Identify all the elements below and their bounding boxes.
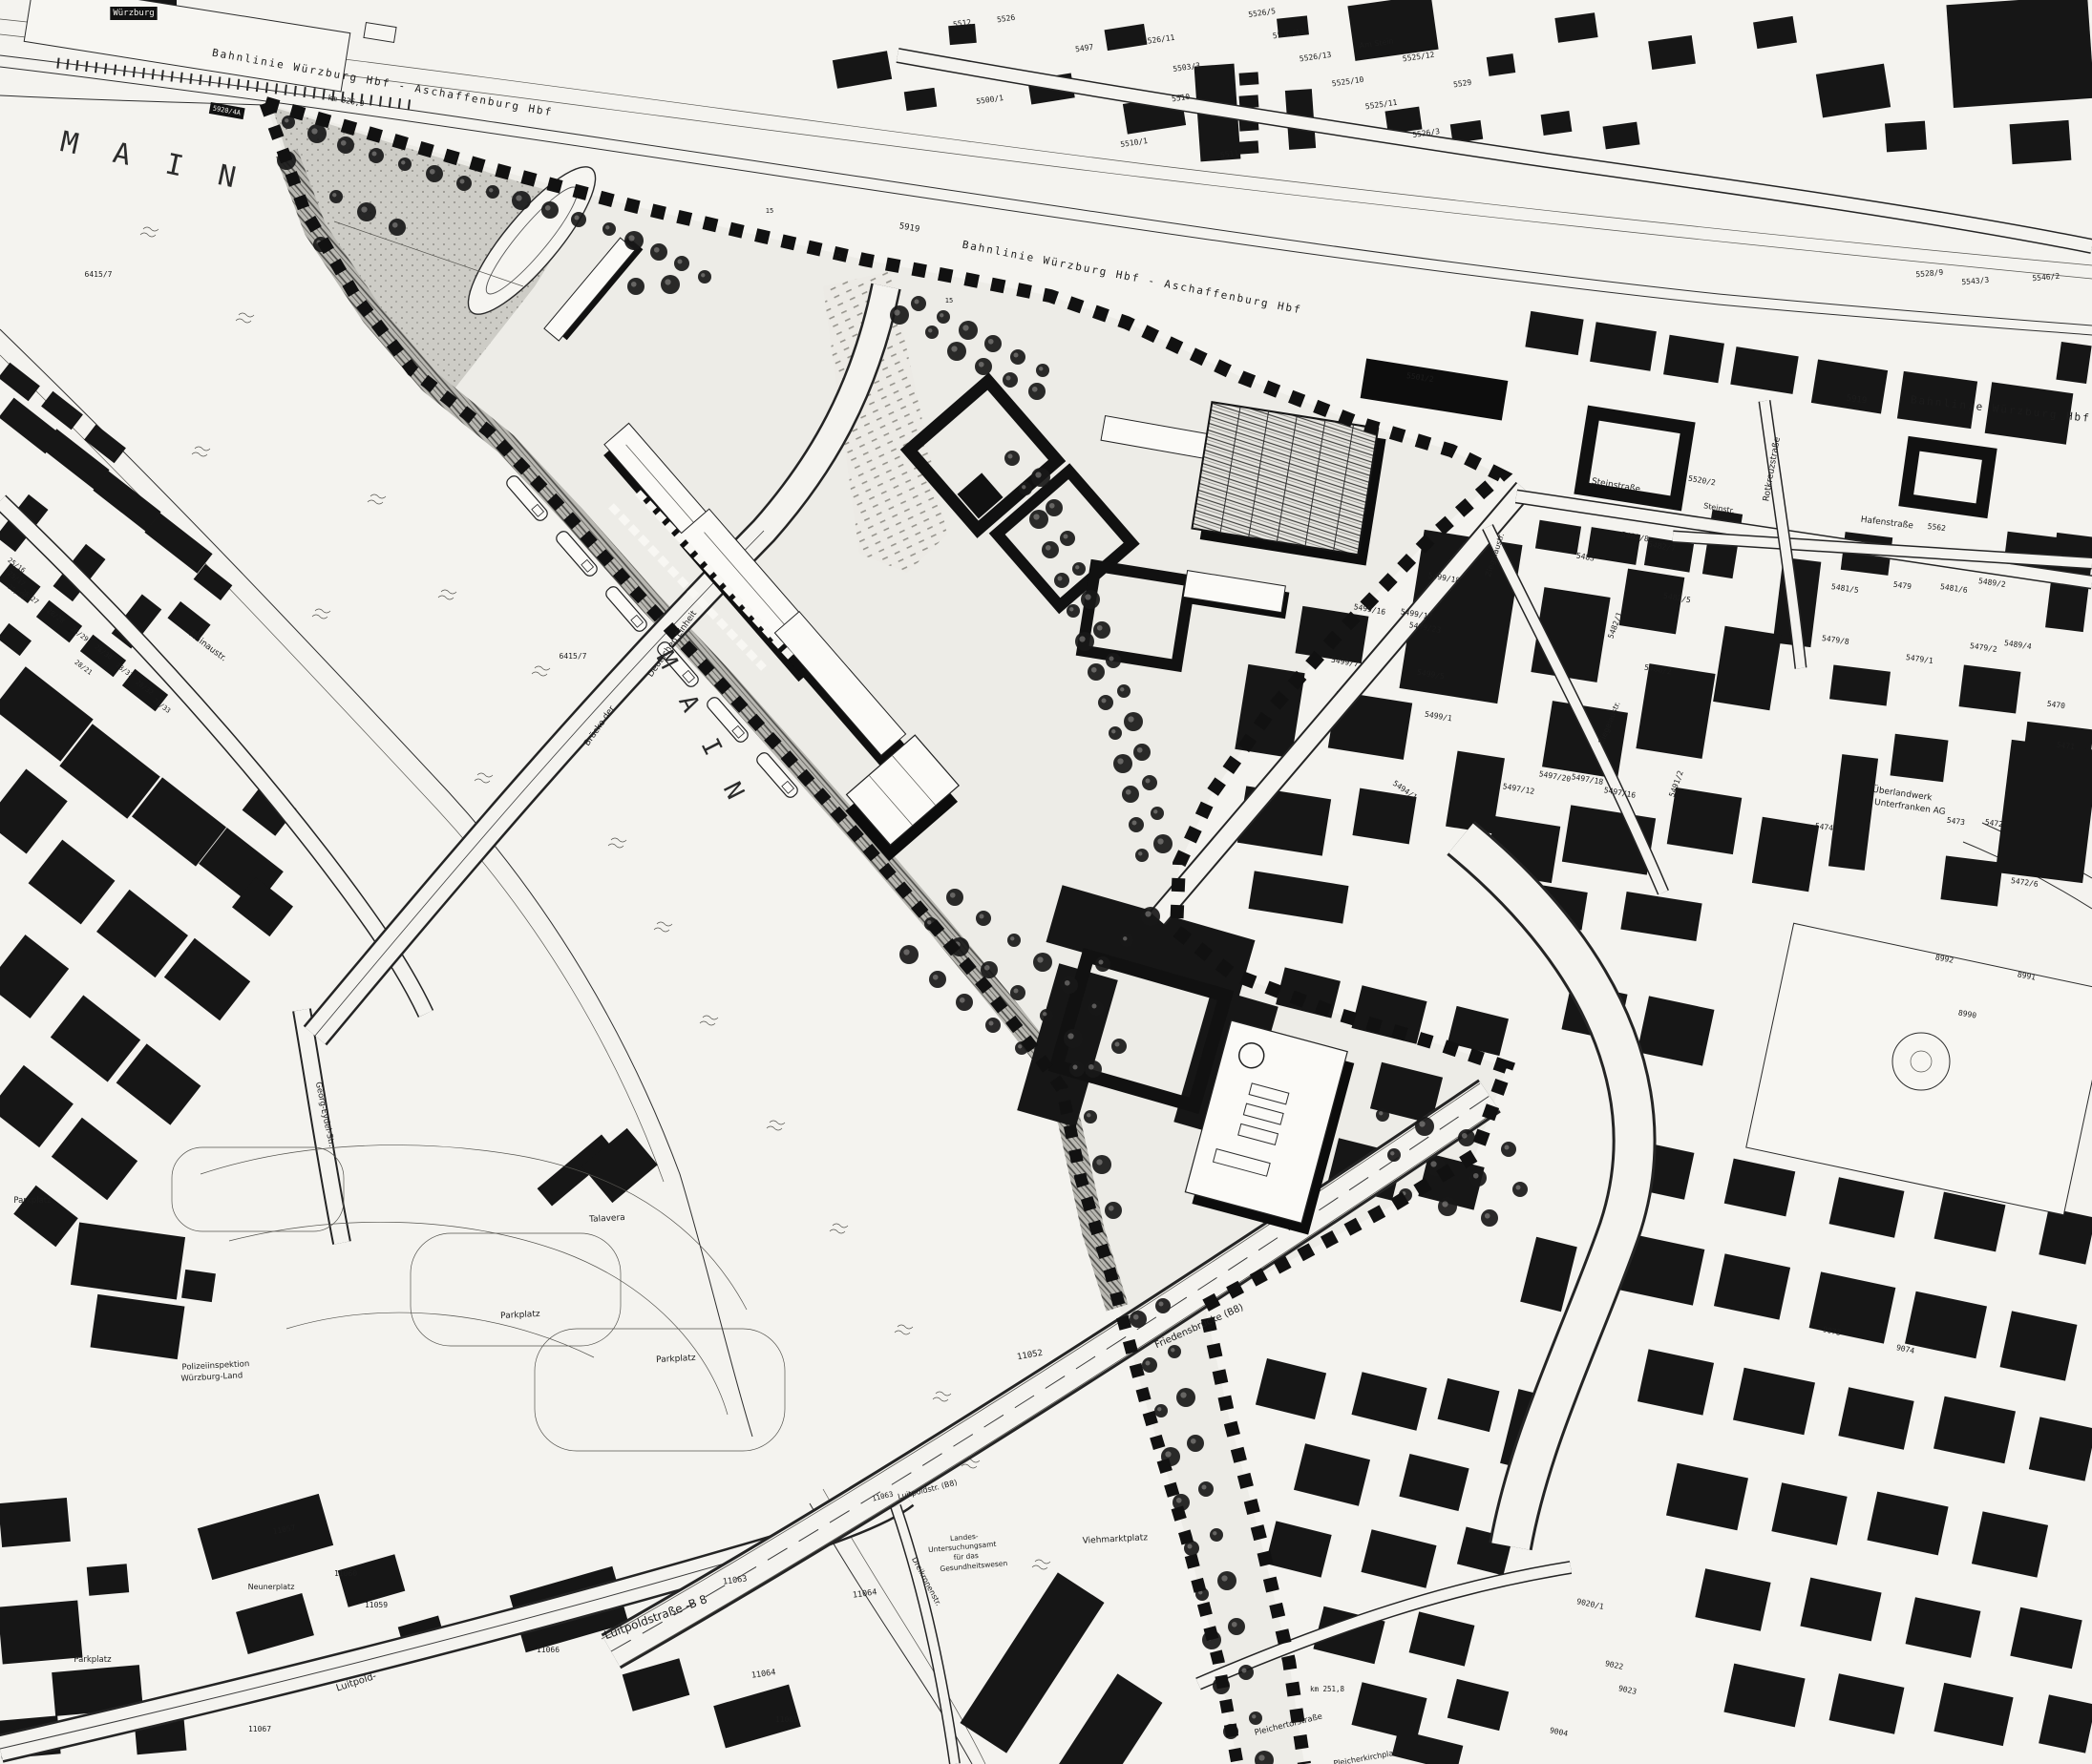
tree-highlight bbox=[1132, 821, 1137, 826]
building-block bbox=[1891, 734, 1949, 782]
tree-icon bbox=[661, 275, 680, 294]
tree-highlight bbox=[1202, 1485, 1207, 1490]
tree-highlight bbox=[1123, 936, 1127, 940]
tree-icon bbox=[937, 310, 950, 324]
tree-icon bbox=[1061, 976, 1078, 994]
tree-highlight bbox=[962, 325, 968, 330]
tree-icon bbox=[1088, 1000, 1104, 1016]
tree-icon bbox=[1142, 775, 1157, 790]
tree-highlight bbox=[605, 225, 609, 229]
tree-highlight bbox=[1117, 758, 1123, 764]
tree-highlight bbox=[1153, 809, 1157, 813]
tree-highlight bbox=[1221, 1575, 1227, 1581]
tree-icon bbox=[1415, 1117, 1434, 1136]
tree-icon bbox=[1130, 1311, 1147, 1328]
tree-highlight bbox=[1419, 1121, 1425, 1126]
building-block bbox=[1636, 663, 1715, 759]
tree-highlight bbox=[1442, 1201, 1447, 1207]
tree-icon bbox=[1512, 1182, 1528, 1197]
tree-highlight bbox=[1097, 625, 1103, 631]
map-label: 11059 bbox=[365, 1601, 388, 1609]
tree-highlight bbox=[1516, 1186, 1521, 1190]
tree-highlight bbox=[1180, 1392, 1186, 1397]
tree-highlight bbox=[1258, 1754, 1264, 1760]
tree-icon bbox=[1249, 1711, 1262, 1725]
tree-highlight bbox=[894, 309, 899, 315]
tree-highlight bbox=[988, 339, 994, 345]
tree-highlight bbox=[1252, 1714, 1256, 1718]
tree-highlight bbox=[960, 997, 965, 1003]
tree-icon bbox=[1217, 1571, 1236, 1590]
tree-icon bbox=[389, 219, 406, 236]
tree-icon bbox=[1122, 786, 1139, 803]
tree-highlight bbox=[927, 920, 931, 924]
building-block bbox=[0, 1498, 71, 1547]
tree-icon bbox=[1010, 985, 1025, 1000]
tree-highlight bbox=[984, 965, 990, 971]
tree-highlight bbox=[1145, 911, 1151, 916]
tree-highlight bbox=[1232, 1622, 1237, 1627]
building-block bbox=[1996, 740, 2092, 883]
tree-highlight bbox=[1014, 353, 1019, 358]
tree-icon bbox=[1153, 834, 1173, 853]
building-block bbox=[1239, 140, 1259, 154]
tree-highlight bbox=[1462, 1133, 1468, 1139]
map-label: Parkplatz bbox=[74, 1655, 112, 1665]
tree-highlight bbox=[430, 169, 435, 175]
tree-icon bbox=[512, 191, 531, 210]
tree-icon bbox=[1105, 1202, 1122, 1219]
tree-highlight bbox=[1092, 1004, 1097, 1009]
tree-icon bbox=[1092, 1155, 1111, 1174]
tree-icon bbox=[1113, 754, 1132, 773]
tree-highlight bbox=[1133, 1314, 1139, 1320]
tree-icon bbox=[1168, 1345, 1181, 1358]
tree-icon bbox=[1228, 1618, 1245, 1635]
map-label: 15 bbox=[766, 207, 773, 215]
building-block bbox=[1667, 787, 1743, 854]
tree-icon bbox=[925, 325, 939, 339]
tree-highlight bbox=[361, 206, 367, 212]
tree-icon bbox=[674, 256, 689, 271]
tree-highlight bbox=[628, 235, 634, 241]
tree-highlight bbox=[665, 279, 670, 284]
tree-icon bbox=[398, 157, 412, 171]
tree-highlight bbox=[1115, 1042, 1120, 1047]
map-label: 11060 bbox=[334, 1569, 357, 1578]
building-block bbox=[2010, 120, 2072, 164]
tree-icon bbox=[959, 321, 978, 340]
tree-icon bbox=[976, 911, 991, 926]
tree-highlight bbox=[392, 222, 398, 228]
tree-highlight bbox=[1473, 1173, 1479, 1179]
tree-icon bbox=[947, 342, 966, 361]
tree-highlight bbox=[460, 179, 465, 184]
tree-highlight bbox=[1138, 851, 1142, 855]
tree-highlight bbox=[1505, 1145, 1510, 1150]
tree-highlight bbox=[1109, 657, 1114, 661]
tree-icon bbox=[1003, 372, 1018, 388]
building-block bbox=[1663, 335, 1724, 384]
tree-icon bbox=[975, 358, 992, 375]
map-label: 6415/7 bbox=[560, 652, 587, 661]
map-label: 6415/7 bbox=[85, 270, 113, 279]
tree-icon bbox=[1064, 1029, 1083, 1048]
tree-icon bbox=[627, 278, 645, 295]
tree-highlight bbox=[989, 1021, 994, 1026]
tree-icon bbox=[1019, 482, 1032, 495]
tree-icon bbox=[1198, 1481, 1214, 1497]
building-block bbox=[1959, 665, 2021, 714]
tree-icon bbox=[1072, 562, 1086, 576]
tree-icon bbox=[1129, 817, 1144, 832]
tree-highlight bbox=[1069, 607, 1073, 611]
tree-icon bbox=[1029, 510, 1048, 529]
tree-icon bbox=[1141, 907, 1160, 926]
building-block bbox=[1946, 0, 2092, 108]
building-block bbox=[1541, 111, 1573, 136]
tree-icon bbox=[1093, 621, 1110, 639]
tree-icon bbox=[1028, 383, 1046, 400]
tree-highlight bbox=[980, 914, 984, 919]
building-block bbox=[1940, 856, 2002, 907]
tree-icon bbox=[985, 1018, 1001, 1033]
scanned-site-plan-map: WürzburgM A I NM A I NBahnlinie Würzburg… bbox=[0, 0, 2092, 1764]
tree-icon bbox=[1085, 1060, 1102, 1078]
map-label: Parkplatz bbox=[13, 1196, 52, 1206]
tree-highlight bbox=[631, 282, 637, 287]
tree-icon bbox=[486, 185, 499, 199]
tree-highlight bbox=[1137, 747, 1143, 753]
tree-icon bbox=[1501, 1142, 1516, 1157]
tree-highlight bbox=[1022, 485, 1025, 489]
tree-icon bbox=[1238, 1665, 1254, 1680]
tree-highlight bbox=[1037, 956, 1043, 962]
tree-icon bbox=[650, 243, 667, 261]
tree-icon bbox=[1106, 653, 1121, 668]
tree-highlight bbox=[915, 300, 919, 304]
tree-highlight bbox=[678, 260, 683, 264]
tree-icon bbox=[541, 201, 559, 219]
tree-highlight bbox=[1157, 1407, 1161, 1411]
tree-highlight bbox=[940, 313, 943, 317]
tree-icon bbox=[1135, 849, 1149, 862]
tree-highlight bbox=[1390, 1151, 1394, 1155]
tree-icon bbox=[1155, 1298, 1171, 1313]
building-block bbox=[1752, 817, 1819, 892]
tree-icon bbox=[1036, 364, 1049, 377]
building-block bbox=[1239, 72, 1259, 85]
tree-highlight bbox=[575, 216, 580, 220]
map-label: 11066 bbox=[537, 1646, 560, 1654]
tree-highlight bbox=[1014, 989, 1019, 994]
tree-icon bbox=[1210, 1528, 1223, 1542]
tree-highlight bbox=[1485, 1213, 1490, 1219]
tree-highlight bbox=[1006, 376, 1011, 381]
tree-highlight bbox=[1191, 1438, 1196, 1444]
building-block bbox=[1829, 664, 1891, 705]
tree-highlight bbox=[654, 247, 660, 253]
tree-icon bbox=[1142, 1357, 1157, 1373]
tree-highlight bbox=[332, 193, 336, 197]
tree-icon bbox=[1109, 726, 1122, 740]
tree-highlight bbox=[1111, 729, 1115, 733]
tree-icon bbox=[698, 270, 711, 283]
map-label: 15 bbox=[945, 297, 953, 304]
tree-highlight bbox=[1171, 1348, 1174, 1352]
tree-highlight bbox=[1046, 545, 1051, 551]
tree-highlight bbox=[1242, 1669, 1247, 1673]
tree-highlight bbox=[903, 949, 909, 955]
tree-highlight bbox=[341, 140, 347, 146]
tree-highlight bbox=[1109, 1206, 1114, 1211]
tree-highlight bbox=[1120, 687, 1124, 691]
map-label: 11067 bbox=[248, 1725, 271, 1733]
tree-icon bbox=[984, 335, 1002, 352]
tree-highlight bbox=[1010, 936, 1014, 940]
building-block bbox=[1648, 35, 1696, 70]
map-label: Neunerplatz bbox=[248, 1583, 295, 1591]
tree-icon bbox=[571, 212, 586, 227]
tree-icon bbox=[369, 148, 384, 163]
tree-icon bbox=[1187, 1435, 1204, 1452]
tree-highlight bbox=[401, 160, 405, 164]
tree-icon bbox=[890, 305, 909, 325]
tree-highlight bbox=[516, 195, 521, 200]
tree-highlight bbox=[928, 328, 932, 332]
map-label: Würzburg bbox=[113, 9, 154, 18]
tree-icon bbox=[946, 889, 963, 906]
tree-highlight bbox=[1039, 367, 1043, 370]
tree-highlight bbox=[311, 128, 317, 134]
tree-icon bbox=[1088, 663, 1105, 681]
tree-icon bbox=[307, 124, 327, 143]
tree-icon bbox=[1084, 1110, 1097, 1123]
tree-highlight bbox=[489, 188, 493, 192]
tree-icon bbox=[1046, 499, 1063, 516]
building-block bbox=[1487, 53, 1516, 76]
tree-icon bbox=[1007, 934, 1021, 947]
tree-highlight bbox=[1165, 1451, 1171, 1457]
tree-highlight bbox=[1188, 1544, 1193, 1549]
tree-icon bbox=[1176, 1388, 1195, 1407]
tree-highlight bbox=[1033, 514, 1039, 519]
tree-highlight bbox=[933, 975, 939, 980]
building-block bbox=[1713, 626, 1782, 710]
tree-icon bbox=[1098, 695, 1113, 710]
tree-icon bbox=[1095, 956, 1110, 972]
tree-highlight bbox=[1379, 1111, 1383, 1115]
tree-highlight bbox=[1008, 454, 1013, 459]
map-label: 11065 bbox=[775, 1715, 798, 1724]
building-block bbox=[87, 1564, 129, 1596]
tree-highlight bbox=[1159, 1302, 1164, 1307]
tree-highlight bbox=[372, 152, 377, 157]
tree-highlight bbox=[1058, 577, 1063, 581]
tree-highlight bbox=[1091, 667, 1097, 673]
tree-icon bbox=[426, 165, 443, 182]
tree-icon bbox=[1120, 934, 1133, 947]
tree-icon bbox=[337, 136, 354, 154]
tree-highlight bbox=[1075, 565, 1079, 569]
tree-icon bbox=[899, 945, 919, 964]
tree-highlight bbox=[1126, 789, 1131, 795]
tree-highlight bbox=[951, 346, 957, 351]
tree-icon bbox=[602, 222, 616, 236]
tree-icon bbox=[981, 961, 998, 978]
building-block bbox=[0, 1600, 82, 1664]
tree-highlight bbox=[1146, 779, 1151, 784]
tree-icon bbox=[956, 994, 973, 1011]
building-block bbox=[181, 1270, 216, 1302]
tree-highlight bbox=[979, 362, 984, 367]
tree-icon bbox=[1004, 451, 1020, 466]
tree-icon bbox=[1042, 541, 1059, 558]
tree-highlight bbox=[1099, 960, 1104, 965]
map-label: km 251,8 bbox=[1310, 1685, 1345, 1693]
building-block bbox=[1885, 121, 1927, 153]
tree-highlight bbox=[1157, 838, 1163, 844]
tree-icon bbox=[1060, 531, 1075, 546]
tree-icon bbox=[1481, 1209, 1498, 1227]
hatched-hall bbox=[1191, 402, 1387, 565]
tree-highlight bbox=[1018, 1044, 1022, 1048]
tree-highlight bbox=[1430, 1161, 1436, 1166]
tree-icon bbox=[1154, 1404, 1168, 1417]
tree-icon bbox=[1469, 1169, 1487, 1186]
tree-highlight bbox=[1128, 716, 1133, 722]
tree-icon bbox=[911, 296, 926, 311]
tree-icon bbox=[1033, 953, 1052, 972]
tree-icon bbox=[456, 176, 472, 191]
tree-highlight bbox=[285, 118, 288, 122]
tree-icon bbox=[1124, 712, 1143, 731]
tree-highlight bbox=[1088, 1064, 1094, 1070]
tree-icon bbox=[929, 971, 946, 988]
tree-icon bbox=[1075, 632, 1094, 651]
map-canvas: WürzburgM A I NM A I NBahnlinie Würzburg… bbox=[0, 0, 2092, 1764]
tree-icon bbox=[1069, 1061, 1085, 1077]
tree-icon bbox=[357, 202, 376, 221]
building-block bbox=[2056, 342, 2091, 384]
tree-highlight bbox=[1213, 1531, 1216, 1535]
tree-icon bbox=[1151, 807, 1164, 820]
tree-icon bbox=[1376, 1108, 1389, 1122]
tree-highlight bbox=[1176, 1498, 1182, 1503]
tree-icon bbox=[1438, 1197, 1457, 1216]
tree-highlight bbox=[1085, 594, 1090, 599]
tree-icon bbox=[1117, 684, 1131, 698]
tree-highlight bbox=[1073, 1065, 1078, 1070]
tree-highlight bbox=[950, 892, 956, 898]
tree-icon bbox=[1067, 604, 1080, 618]
tree-highlight bbox=[1064, 535, 1068, 539]
tree-icon bbox=[1387, 1148, 1401, 1162]
tree-icon bbox=[1458, 1129, 1475, 1146]
tree-icon bbox=[624, 231, 644, 250]
tree-icon bbox=[329, 190, 343, 203]
tree-highlight bbox=[1079, 636, 1085, 641]
tree-icon bbox=[1040, 1009, 1053, 1022]
tree-highlight bbox=[1087, 1113, 1090, 1117]
tree-icon bbox=[1111, 1039, 1127, 1054]
tree-highlight bbox=[1102, 699, 1107, 703]
tree-icon bbox=[1010, 349, 1025, 365]
tree-highlight bbox=[1049, 503, 1055, 509]
tree-highlight bbox=[701, 273, 705, 277]
tree-icon bbox=[1133, 744, 1151, 761]
tree-icon bbox=[1031, 468, 1050, 487]
tree-highlight bbox=[1043, 1012, 1046, 1016]
tree-highlight bbox=[1032, 387, 1038, 392]
tree-highlight bbox=[1065, 980, 1070, 986]
tree-highlight bbox=[1035, 472, 1041, 477]
building-block bbox=[1603, 122, 1640, 150]
tree-icon bbox=[1081, 590, 1100, 609]
tree-highlight bbox=[1096, 1159, 1102, 1165]
tree-highlight bbox=[1067, 1033, 1073, 1039]
tree-highlight bbox=[545, 205, 551, 211]
map-label: Talavera bbox=[588, 1213, 625, 1225]
map-label: 15 bbox=[834, 253, 841, 261]
tree-icon bbox=[1054, 573, 1069, 588]
tree-highlight bbox=[1146, 1361, 1151, 1366]
